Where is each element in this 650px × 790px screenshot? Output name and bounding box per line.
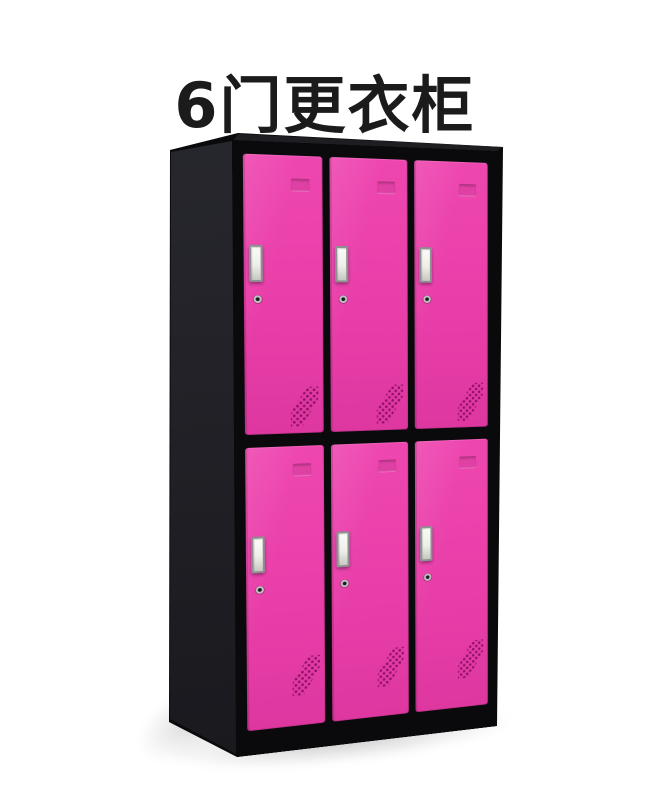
keyhole-icon bbox=[340, 579, 350, 589]
vent-perforations bbox=[292, 655, 320, 696]
card-label-slot bbox=[292, 463, 312, 477]
locker-door-r1c2 bbox=[329, 157, 408, 432]
door-handle bbox=[419, 247, 432, 283]
vent-perforations bbox=[458, 383, 483, 421]
door-handle bbox=[251, 536, 265, 573]
product-title: 6门更衣柜 bbox=[0, 70, 650, 141]
door-handle bbox=[336, 531, 349, 568]
locker-door-r1c3 bbox=[414, 160, 488, 429]
locker-door-r2c2 bbox=[331, 442, 409, 722]
keyhole-icon bbox=[423, 573, 433, 583]
keyhole-icon bbox=[255, 585, 266, 596]
door-handle bbox=[335, 246, 348, 282]
card-label-slot bbox=[458, 184, 476, 197]
card-label-slot bbox=[290, 178, 310, 192]
keyhole-icon bbox=[338, 295, 348, 305]
locker-door-r1c1 bbox=[243, 154, 324, 435]
vent-perforations bbox=[377, 385, 404, 424]
keyhole-icon bbox=[252, 295, 263, 305]
locker-door-r2c3 bbox=[415, 439, 488, 713]
keyhole-icon bbox=[422, 295, 432, 305]
vent-perforations bbox=[458, 639, 483, 678]
vent-perforations bbox=[291, 386, 319, 426]
cabinet-front-face bbox=[232, 140, 497, 757]
card-label-slot bbox=[459, 456, 477, 469]
card-label-slot bbox=[378, 459, 397, 472]
door-handle bbox=[420, 526, 433, 562]
locker-door-r2c1 bbox=[245, 445, 325, 731]
door-handle bbox=[249, 245, 263, 282]
vent-perforations bbox=[378, 647, 404, 687]
card-label-slot bbox=[377, 181, 396, 194]
product-page: 6门更衣柜 bbox=[0, 0, 650, 790]
